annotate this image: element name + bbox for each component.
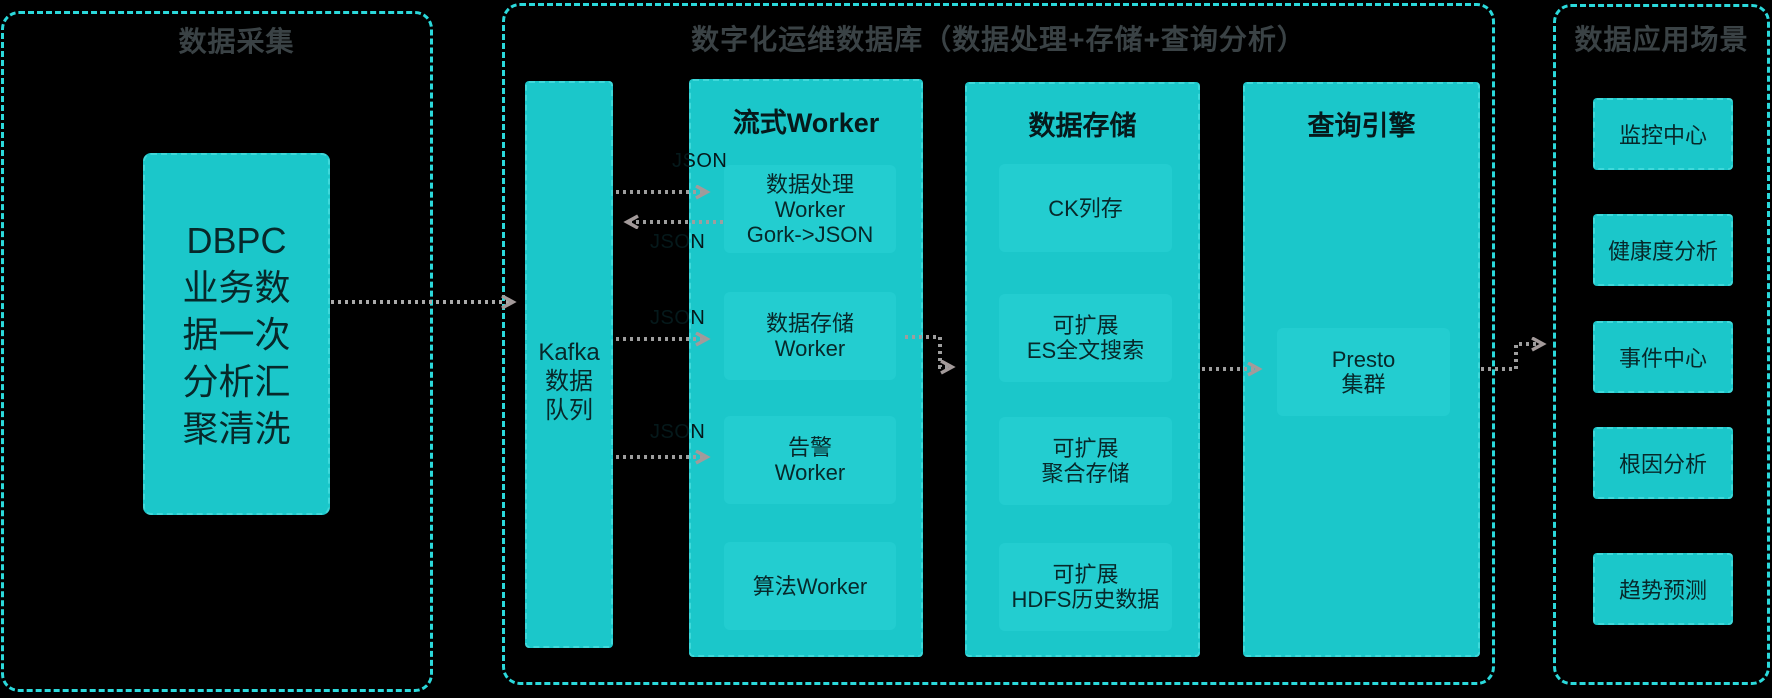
app-label: 健康度分析 xyxy=(1608,234,1718,266)
item-line: Worker xyxy=(775,460,846,485)
app-label: 趋势预测 xyxy=(1619,573,1707,605)
item-line: Gork->JSON xyxy=(747,222,874,247)
app-box-root-cause: 根因分析 xyxy=(1593,427,1733,499)
diagram-canvas: { "colors": { "background": "#000000", "… xyxy=(0,0,1772,698)
item-line: 集群 xyxy=(1341,372,1385,397)
item-line: 算法Worker xyxy=(753,574,868,599)
connector-label-json: JSON xyxy=(650,421,705,444)
app-box-event-center: 事件中心 xyxy=(1593,321,1733,393)
app-box-trend-forecast: 趋势预测 xyxy=(1593,553,1733,625)
kafka-line: 队列 xyxy=(545,396,593,425)
storage-item-ck: CK列存 xyxy=(999,164,1172,252)
data-storage-title: 数据存储 xyxy=(967,104,1198,143)
storage-item-aggregate: 可扩展 聚合存储 xyxy=(999,417,1172,505)
stream-item-algorithm: 算法Worker xyxy=(724,542,896,630)
item-line: 数据存储 xyxy=(766,311,854,336)
connector-label-json: JSON xyxy=(672,150,727,173)
storage-item-es: 可扩展 ES全文搜索 xyxy=(999,294,1172,382)
dbpc-line: 分析汇 xyxy=(182,358,290,405)
data-storage-box: 数据存储 CK列存 可扩展 ES全文搜索 可扩展 聚合存储 可扩展 HDFS历史… xyxy=(965,82,1200,657)
app-label: 事件中心 xyxy=(1619,341,1707,373)
connector-label-json: JSON xyxy=(650,231,705,254)
connector-label-json: JSON xyxy=(650,307,705,330)
app-label: 监控中心 xyxy=(1619,118,1707,150)
stream-item-data-process: 数据处理 Worker Gork->JSON xyxy=(724,165,896,253)
app-box-monitoring-center: 监控中心 xyxy=(1593,98,1733,170)
apps-panel-title: 数据应用场景 xyxy=(1553,18,1770,58)
kafka-line: 数据 xyxy=(545,367,593,396)
item-line: 可扩展 xyxy=(1052,562,1118,587)
item-line: 可扩展 xyxy=(1052,313,1118,338)
dbpc-line: 业务数 xyxy=(182,264,290,311)
item-line: Presto xyxy=(1332,347,1396,372)
item-line: Worker xyxy=(775,197,846,222)
kafka-queue-box: Kafka 数据 队列 xyxy=(525,81,613,648)
dbpc-source-box: DBPC 业务数 据一次 分析汇 聚清洗 xyxy=(143,153,330,515)
dbpc-line: DBPC xyxy=(186,217,286,264)
item-line: 聚合存储 xyxy=(1041,461,1129,486)
app-label: 根因分析 xyxy=(1619,447,1707,479)
stream-item-alert: 告警 Worker xyxy=(724,416,896,504)
item-line: 数据处理 xyxy=(766,172,854,197)
kafka-line: Kafka xyxy=(538,338,599,367)
item-line: ES全文搜索 xyxy=(1027,338,1144,363)
query-engine-title: 查询引擎 xyxy=(1245,104,1478,143)
stream-item-data-store: 数据存储 Worker xyxy=(724,292,896,380)
item-line: CK列存 xyxy=(1048,196,1123,221)
item-line: Worker xyxy=(775,336,846,361)
query-engine-box: 查询引擎 Presto 集群 xyxy=(1243,82,1480,657)
storage-item-hdfs: 可扩展 HDFS历史数据 xyxy=(999,543,1172,631)
collection-panel-title: 数据采集 xyxy=(143,20,330,60)
platform-panel-title: 数字化运维数据库（数据处理+存储+查询分析） xyxy=(502,18,1495,58)
dbpc-line: 聚清洗 xyxy=(182,405,290,452)
query-item-presto: Presto 集群 xyxy=(1277,328,1450,416)
item-line: 可扩展 xyxy=(1052,436,1118,461)
item-line: 告警 xyxy=(788,435,832,460)
item-line: HDFS历史数据 xyxy=(1012,587,1160,612)
stream-worker-title: 流式Worker xyxy=(691,101,921,140)
app-box-health-analysis: 健康度分析 xyxy=(1593,214,1733,286)
dbpc-line: 据一次 xyxy=(182,311,290,358)
